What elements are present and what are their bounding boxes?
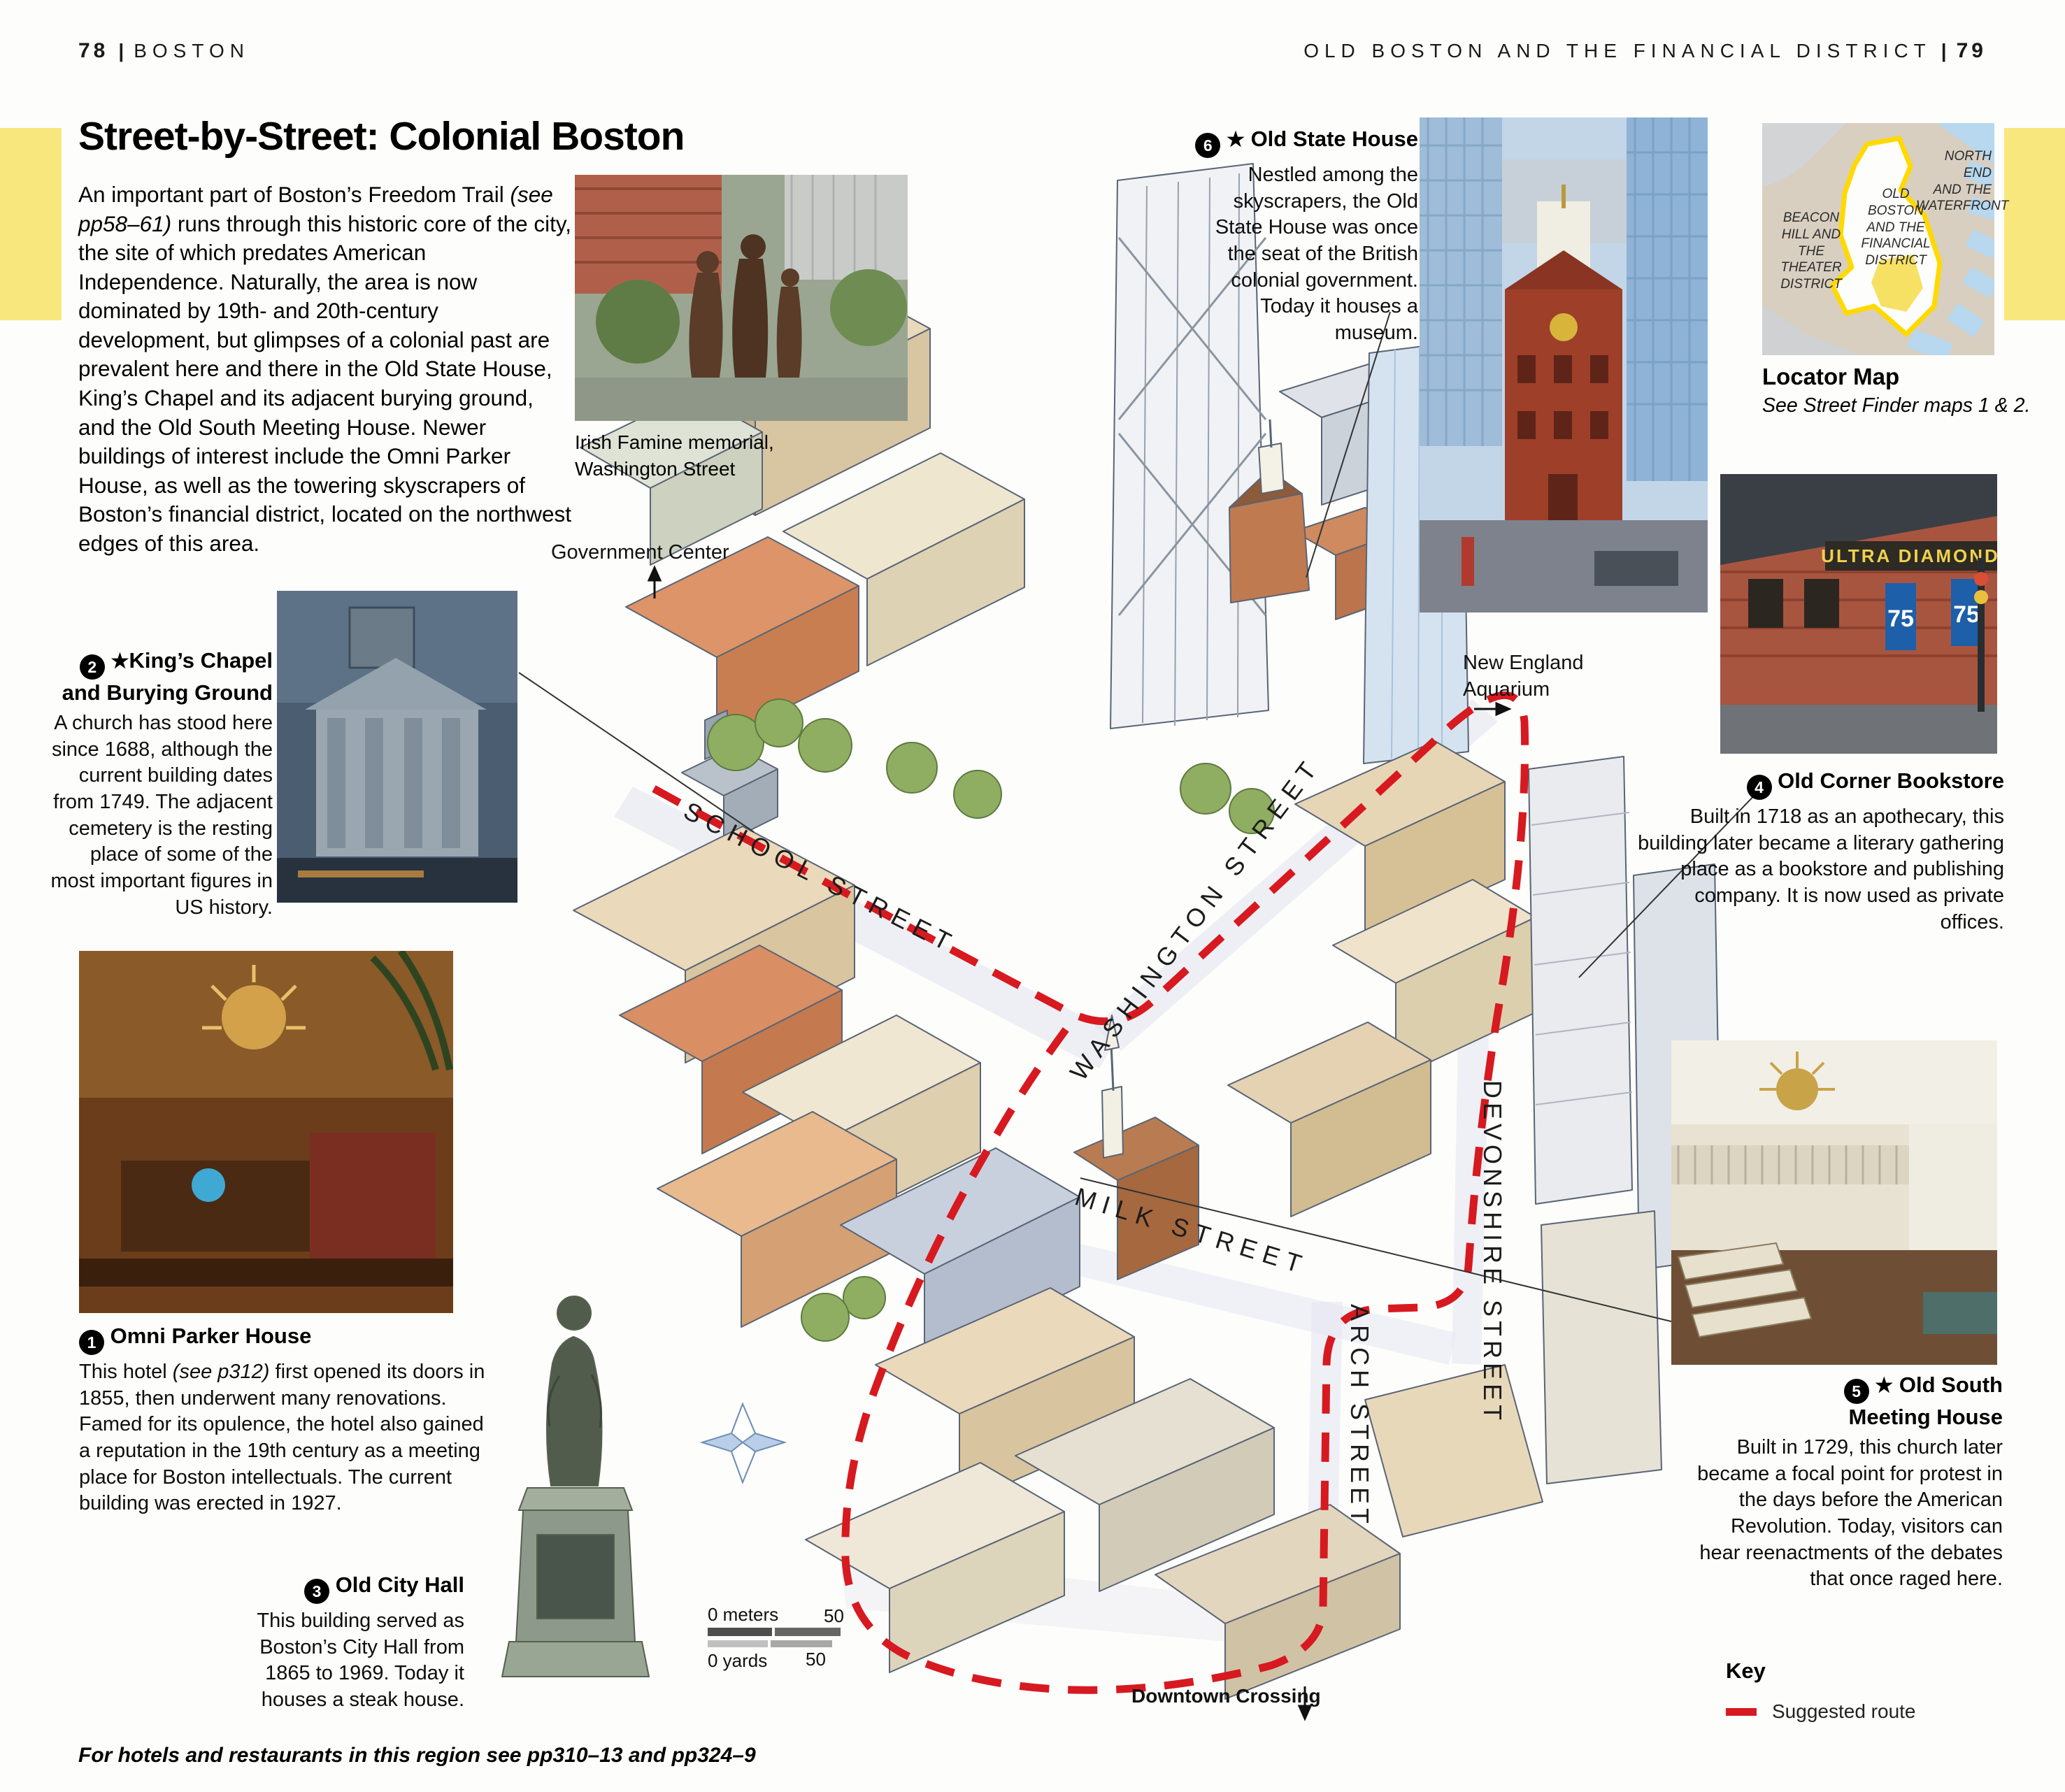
key-title: Key xyxy=(1726,1658,1766,1684)
callout-body: Built in 1718 as an apothecary, this bui… xyxy=(1635,804,2004,936)
callout-title: 5 ★ Old South Meeting House xyxy=(1779,1372,2003,1431)
banner-75-text: 75 xyxy=(1953,601,1980,628)
callout-number-badge: 2 xyxy=(80,654,105,680)
callout-title: 3 Old City Hall xyxy=(246,1572,464,1604)
old-corner-photo-art: ULTRA DIAMOND 75 75 xyxy=(1720,474,1997,754)
header-divider: | xyxy=(108,40,134,62)
old-south-meeting-house-photo xyxy=(1671,1040,1997,1365)
callout-title-text: Old City Hall xyxy=(336,1572,464,1597)
star-icon: ★ xyxy=(1875,1375,1893,1397)
star-icon: ★ xyxy=(1227,129,1245,151)
locator-map-caption: Locator Map xyxy=(1762,364,1899,390)
arch-street-label: ARCH STREET xyxy=(1345,1304,1374,1528)
scale-meters-zero: 0 meters xyxy=(708,1604,778,1625)
banner-75-text: 75 xyxy=(1887,605,1914,632)
star-icon: ★ xyxy=(110,650,129,673)
callout-old-state-house: 6 ★ Old State House Nestled among the sk… xyxy=(1189,126,1418,347)
callout-text: This hotel xyxy=(79,1361,173,1383)
scale-yards-zero: 0 yards xyxy=(708,1650,767,1671)
right-section-title: OLD BOSTON AND THE FINANCIAL DISTRICT xyxy=(1303,40,1931,62)
callout-title: 4 Old Corner Bookstore xyxy=(1635,768,2004,800)
kings-chapel-photo-art xyxy=(277,591,517,903)
callout-body: Nestled among the skyscrapers, the Old S… xyxy=(1189,162,1418,347)
intro-text: runs through this historic core of the c… xyxy=(78,211,571,556)
callout-text: first opened its doors in 1855, then und… xyxy=(79,1361,485,1514)
left-section-title: BOSTON xyxy=(134,40,250,62)
callout-kings-chapel: 2 ★King’s Chapel and Burying Ground A ch… xyxy=(41,647,273,921)
intro-text: An important part of Boston’s Freedom Tr… xyxy=(78,182,510,207)
kings-chapel-photo xyxy=(277,591,517,903)
key-row: Suggested route xyxy=(1726,1700,1916,1723)
callout-body: This building served as Boston’s City Ha… xyxy=(246,1608,464,1714)
key-suggested-route-label: Suggested route xyxy=(1772,1700,1916,1723)
intro-paragraph: An important part of Boston’s Freedom Tr… xyxy=(78,180,576,559)
callout-title-text: Old State House xyxy=(1251,127,1418,151)
callout-number-badge: 5 xyxy=(1844,1379,1869,1404)
callout-number-badge: 6 xyxy=(1195,133,1220,158)
header-divider: | xyxy=(1931,40,1957,62)
callout-number-badge: 3 xyxy=(304,1579,329,1604)
new-england-aquarium-label: New England Aquarium xyxy=(1463,650,1584,703)
callout-title: 2 ★King’s Chapel and Burying Ground xyxy=(41,647,273,706)
route-dash-icon xyxy=(1726,1708,1757,1716)
government-center-label: Government Center xyxy=(551,540,729,566)
callout-old-city-hall: 3 Old City Hall This building served as … xyxy=(246,1572,464,1714)
page-title: Street-by-Street: Colonial Boston xyxy=(78,113,684,159)
left-running-header: 78|BOSTON xyxy=(78,39,250,63)
callout-number-badge: 4 xyxy=(1747,775,1772,800)
callout-title: 1 Omni Parker House xyxy=(79,1323,488,1355)
omni-parker-house-photo xyxy=(79,951,453,1313)
guidebook-spread: 78|BOSTON OLD BOSTON AND THE FINANCIAL D… xyxy=(0,0,2065,1792)
callout-title: 6 ★ Old State House xyxy=(1189,126,1418,158)
locator-map-subcaption: See Street Finder maps 1 & 2. xyxy=(1762,394,2030,417)
scale-bar: 0 meters 50 0 yards 50 xyxy=(708,1604,844,1671)
old-state-house-photo-art xyxy=(1420,117,1708,612)
devonshire-street-label: DEVONSHIRE STREET xyxy=(1478,1080,1507,1424)
irish-famine-photo-art xyxy=(575,175,908,421)
irish-famine-caption: Irish Famine memorial, Washington Street xyxy=(575,429,827,482)
downtown-crossing-label: Downtown Crossing xyxy=(1131,1684,1321,1709)
shop-sign-text: ULTRA DIAMOND xyxy=(1821,545,1997,566)
locator-label-beacon-hill: BEACON HILL AND THE THEATER DISTRICT xyxy=(1776,210,1846,293)
irish-famine-memorial-photo xyxy=(575,175,908,421)
callout-number-badge: 1 xyxy=(79,1330,104,1355)
omni-parker-photo-art xyxy=(79,951,453,1313)
callout-body: This hotel (see p312) first opened its d… xyxy=(79,1359,488,1517)
old-corner-bookstore-photo: ULTRA DIAMOND 75 75 xyxy=(1720,474,1997,754)
callout-body: A church has stood here since 1688, alth… xyxy=(41,710,273,922)
scale-meters-max: 50 xyxy=(824,1605,844,1626)
callout-omni-parker: 1 Omni Parker House This hotel (see p312… xyxy=(79,1323,488,1517)
old-state-house-photo xyxy=(1420,117,1708,612)
callout-old-corner-bookstore: 4 Old Corner Bookstore Built in 1718 as … xyxy=(1635,768,2004,936)
callout-title-text: Old Corner Bookstore xyxy=(1778,768,2004,793)
callout-old-south-meeting-house: 5 ★ Old South Meeting House Built in 172… xyxy=(1696,1372,2003,1593)
callout-cross-reference: (see p312) xyxy=(173,1361,270,1383)
callout-body: Built in 1729, this church later became … xyxy=(1696,1435,2003,1593)
old-south-photo-art xyxy=(1671,1040,1997,1365)
callout-title-text: Old South Meeting House xyxy=(1849,1372,2003,1429)
scale-yards-max: 50 xyxy=(806,1649,826,1670)
right-page-number: 79 xyxy=(1957,39,1987,62)
left-page-number: 78 xyxy=(78,39,108,62)
compass-rose-icon xyxy=(702,1404,785,1482)
locator-label-old-boston: OLD BOSTON AND THE FINANCIAL DISTRICT xyxy=(1857,186,1934,269)
franklin-statue-illustration xyxy=(502,1296,649,1677)
callout-title-text: Omni Parker House xyxy=(110,1324,312,1348)
right-running-header: OLD BOSTON AND THE FINANCIAL DISTRICT|79 xyxy=(1303,39,1987,63)
footer-cross-reference: For hotels and restaurants in this regio… xyxy=(78,1744,756,1768)
